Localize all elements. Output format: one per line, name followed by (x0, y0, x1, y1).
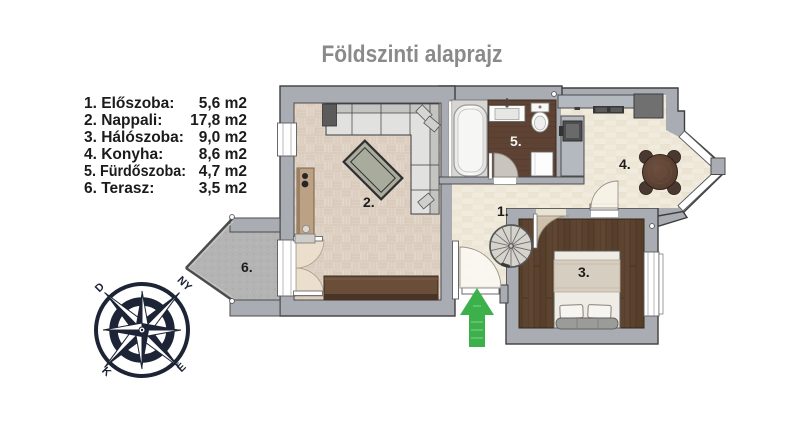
svg-text:4.: 4. (619, 156, 631, 172)
svg-text:9,0 m2: 9,0 m2 (199, 129, 247, 146)
svg-text:3. Hálószoba:: 3. Hálószoba: (84, 129, 184, 146)
svg-text:5. Fürdőszoba:: 5. Fürdőszoba: (84, 163, 186, 180)
svg-text:Földszinti alaprajz: Földszinti alaprajz (322, 41, 503, 68)
svg-text:17,8 m2: 17,8 m2 (190, 112, 247, 129)
svg-text:1.: 1. (497, 203, 509, 219)
svg-text:4. Konyha:: 4. Konyha: (84, 146, 163, 163)
svg-text:5.: 5. (510, 133, 522, 149)
svg-text:NY: NY (174, 274, 194, 294)
svg-text:3,5 m2: 3,5 m2 (199, 180, 247, 197)
svg-text:2. Nappali:: 2. Nappali: (84, 112, 162, 129)
svg-text:2.: 2. (363, 194, 375, 210)
svg-text:6.: 6. (241, 259, 253, 275)
svg-text:4,7 m2: 4,7 m2 (199, 163, 247, 180)
svg-text:8,6 m2: 8,6 m2 (199, 146, 247, 163)
svg-text:6. Terasz:: 6. Terasz: (84, 180, 154, 197)
svg-text:1. Előszoba:: 1. Előszoba: (84, 95, 174, 112)
svg-text:5,6 m2: 5,6 m2 (199, 95, 247, 112)
svg-text:K: K (99, 365, 113, 379)
svg-text:3.: 3. (578, 264, 590, 280)
